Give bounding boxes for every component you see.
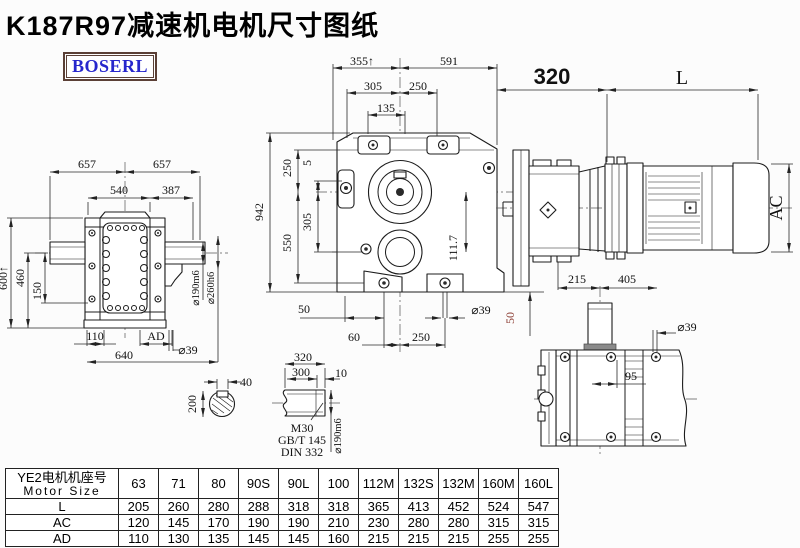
dim-shaft-10: 10 [335,366,347,380]
cell-AD-71: 130 [159,531,199,547]
cell-AD-132S: 215 [399,531,439,547]
cell-AD-80: 135 [199,531,239,547]
dim-60: 60 [348,330,360,344]
cell-AC-132M: 280 [439,515,479,531]
dim-shaft-dia-190: ⌀190m6 [333,418,344,454]
dim-657-right: 657 [153,157,171,171]
dim-shaft-dia: ⌀190m6 [191,270,202,306]
cell-AD-100: 160 [319,531,359,547]
dim-bolt-dia-top: ⌀39 [677,320,696,334]
dim-shaft-320: 320 [294,350,312,364]
col-63: 63 [119,469,159,499]
dim-540: 540 [110,183,128,197]
cell-L-160L: 547 [519,499,559,515]
dim-key-width: 40 [240,375,252,389]
motor-size-header-cn: YE2电机机座号 [6,470,118,485]
dim-150: 150 [30,282,44,300]
dim-50-side: 50 [503,312,517,324]
cell-L-90L: 318 [279,499,319,515]
dim-flange-dia: ⌀260h6 [206,272,217,305]
front-view: 355↑ 591 305 250 135 942 250 5 305 550 1… [252,54,544,352]
dim-95: 95 [625,369,637,383]
dim-shaft-300: 300 [292,365,310,379]
motor-size-table: YE2电机机座号 Motor Size 63 71 80 90S 90L 100… [5,468,559,547]
drawing-sheet: K187R97减速机电机尺寸图纸 BOSERL [0,0,800,548]
cell-AC-112M: 230 [359,515,399,531]
cell-AC-160M: 315 [479,515,519,531]
cell-L-132M: 452 [439,499,479,515]
cell-AC-71: 145 [159,515,199,531]
technical-drawing: 355↑ 591 305 250 135 942 250 5 305 550 1… [0,0,800,548]
din-standard-label: DIN 332 [281,445,323,459]
dim-215: 215 [568,272,586,286]
cell-AD-90S: 145 [239,531,279,547]
cell-AC-80: 170 [199,515,239,531]
col-90S: 90S [239,469,279,499]
dim-640: 640 [115,348,133,362]
row-label-AC: AC [6,515,119,531]
cell-L-132S: 413 [399,499,439,515]
cell-AC-63: 120 [119,515,159,531]
col-160M: 160M [479,469,519,499]
dim-591: 591 [440,54,458,68]
dim-bolt-dia: ⌀39 [471,303,490,317]
cell-L-63: 205 [119,499,159,515]
cell-AD-160L: 255 [519,531,559,547]
dim-600: 600↑ [0,266,10,290]
col-100: 100 [319,469,359,499]
cell-AD-132M: 215 [439,531,479,547]
dim-657-left: 657 [78,157,96,171]
dim-305-top: 305 [364,79,382,93]
col-132S: 132S [399,469,439,499]
cell-AD-160M: 255 [479,531,519,547]
motor-view: 320 L AC 215 405 [496,64,794,290]
shaft-detail: 320 300 10 M30 GB/T 145 DIN 332 ⌀190m6 [272,350,347,459]
cell-AC-100: 210 [319,515,359,531]
col-90L: 90L [279,469,319,499]
table-row-AC: AC 120 145 170 190 190 210 230 280 280 3… [6,515,559,531]
col-160L: 160L [519,469,559,499]
row-label-L: L [6,499,119,515]
cell-L-90S: 288 [239,499,279,515]
dim-355: 355↑ [350,54,374,68]
table-row-AD: AD 110 130 135 145 145 160 215 215 215 2… [6,531,559,547]
cell-AC-160L: 315 [519,515,559,531]
shaft-section: 40 200 [185,375,252,417]
dim-942: 942 [252,203,266,221]
dim-250-left: 250 [280,159,294,177]
cell-L-112M: 365 [359,499,399,515]
cell-L-80: 280 [199,499,239,515]
table-row-L: L 205 260 280 288 318 318 365 413 452 52… [6,499,559,515]
dim-AC: AC [766,195,786,220]
table-header-row: YE2电机机座号 Motor Size 63 71 80 90S 90L 100… [6,469,559,499]
motor-size-header-en: Motor Size [6,485,118,498]
dim-305-left: 305 [300,213,314,231]
cell-AC-90S: 190 [239,515,279,531]
dim-135: 135 [377,101,395,115]
cell-L-100: 318 [319,499,359,515]
dim-bolt-dia-side: ⌀39 [178,343,197,357]
col-132M: 132M [439,469,479,499]
dim-550: 550 [280,234,294,252]
cell-AC-90L: 190 [279,515,319,531]
cell-AD-90L: 145 [279,531,319,547]
dim-111-7: 111.7 [446,235,460,261]
dim-387: 387 [162,183,180,197]
dim-110: 110 [86,329,104,343]
cell-L-71: 260 [159,499,199,515]
col-80: 80 [199,469,239,499]
dim-250-bottom: 250 [412,330,430,344]
top-view: ⌀39 95 [534,286,700,456]
dim-5: 5 [300,160,314,166]
dim-320-bold: 320 [534,64,571,89]
dim-L: L [676,67,688,89]
col-71: 71 [159,469,199,499]
motor-size-header: YE2电机机座号 Motor Size [6,469,119,499]
dim-shaft-200: 200 [185,395,199,413]
col-112M: 112M [359,469,399,499]
row-label-AD: AD [6,531,119,547]
cell-AC-132S: 280 [399,515,439,531]
cell-AD-112M: 215 [359,531,399,547]
cell-L-160M: 524 [479,499,519,515]
dim-50-foot: 50 [298,302,310,316]
side-view: 657 657 540 387 600↑ 460 150 ⌀190m6 ⌀260… [0,157,228,362]
dim-250-top: 250 [409,79,427,93]
dim-460: 460 [13,269,27,287]
dim-405: 405 [618,272,636,286]
dim-ad: AD [147,329,165,343]
cell-AD-63: 110 [119,531,159,547]
